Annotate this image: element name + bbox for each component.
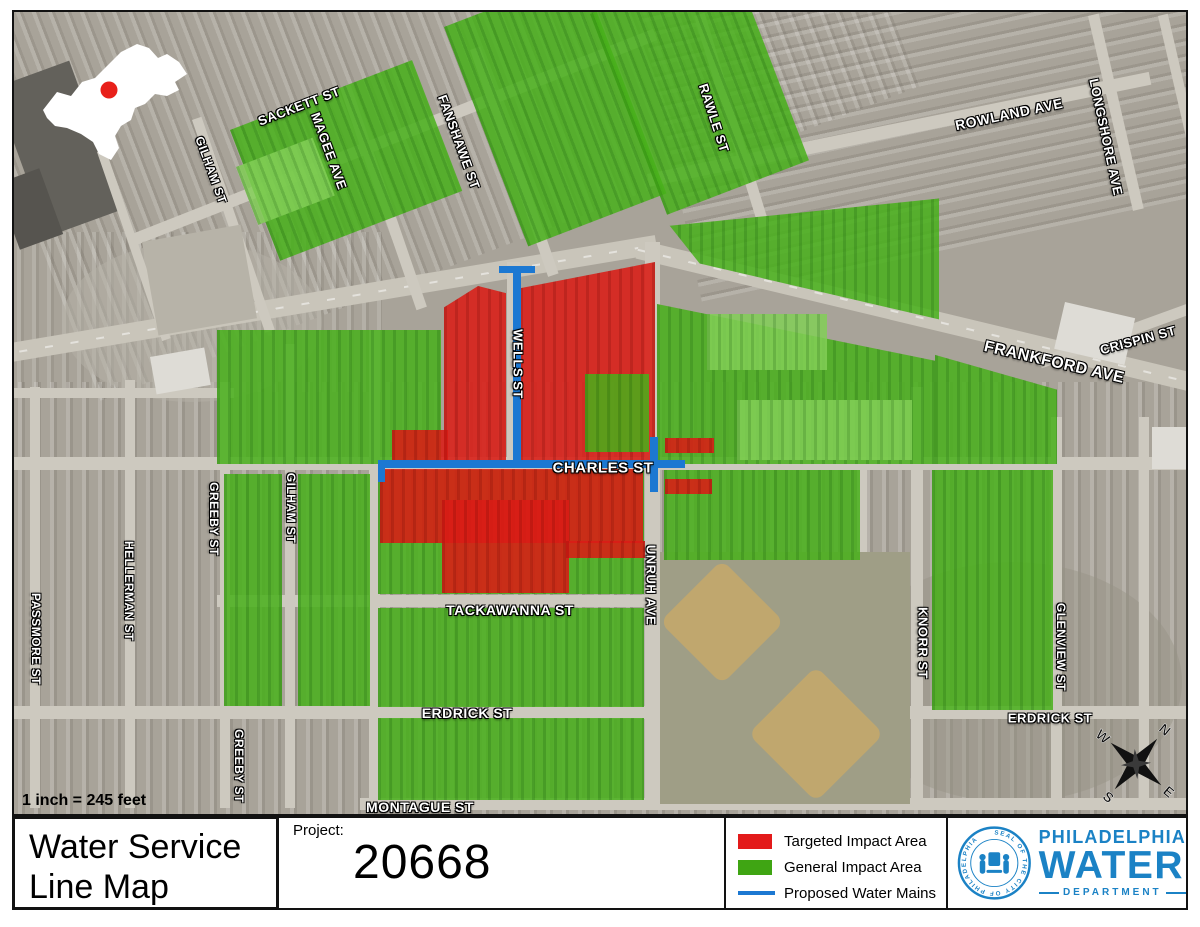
compass-s: S bbox=[1100, 788, 1117, 806]
street-label: UNRUH AVE bbox=[644, 545, 659, 625]
legend-row-targeted: Targeted Impact Area bbox=[738, 828, 946, 854]
map-title-box: Water Service Line Map bbox=[12, 816, 279, 910]
street-label: GILHAM ST bbox=[284, 473, 298, 544]
street-label: WELLS ST bbox=[511, 329, 526, 399]
legend-swatch-general bbox=[738, 860, 772, 875]
impact-area-general bbox=[224, 474, 282, 706]
impact-area-general bbox=[585, 374, 649, 452]
impact-area-general bbox=[667, 192, 939, 322]
compass-e: E bbox=[1160, 783, 1177, 801]
parking-lot bbox=[142, 225, 257, 336]
legend-swatch-mains bbox=[738, 891, 775, 895]
wordmark-dash bbox=[1039, 892, 1059, 894]
pwd-wordmark: PHILADELPHIA WATER DEPARTMENT bbox=[1039, 828, 1186, 899]
impact-area-general bbox=[378, 608, 644, 707]
map-layers: SACKETT STMAGEE AVEFANSHAWE STRAWLE STGI… bbox=[12, 10, 1188, 816]
legend-label-general: General Impact Area bbox=[784, 859, 922, 876]
street-minor bbox=[1158, 14, 1188, 201]
street-label: CHARLES ST bbox=[553, 460, 654, 477]
impact-area-general bbox=[298, 474, 370, 706]
legend-label-targeted: Targeted Impact Area bbox=[784, 833, 927, 850]
water-main-end-tick bbox=[499, 266, 535, 273]
impact-area-targeted bbox=[444, 286, 506, 464]
street-minor bbox=[12, 388, 234, 398]
legend-swatch-targeted bbox=[738, 834, 772, 849]
city-seal-icon: SEAL OF THE CITY OF PHILADELPHIA bbox=[956, 824, 1033, 902]
impact-area-general bbox=[707, 314, 827, 370]
compass-rose: N E S W bbox=[1084, 712, 1188, 816]
impact-area-targeted bbox=[665, 438, 714, 453]
water-service-line-map-page: SACKETT STMAGEE AVEFANSHAWE STRAWLE STGI… bbox=[0, 0, 1200, 927]
impact-area-targeted bbox=[665, 479, 712, 494]
philadelphia-silhouette bbox=[43, 44, 187, 160]
pwd-wordmark-philadelphia: PHILADELPHIA bbox=[1039, 828, 1186, 846]
compass-n: N bbox=[1156, 720, 1174, 739]
street-label: PASSMORE ST bbox=[29, 593, 43, 685]
street-label: HELLERMAN ST bbox=[122, 541, 136, 641]
street-label: ERDRICK ST bbox=[1008, 711, 1092, 726]
building-roof bbox=[1152, 427, 1188, 469]
pwd-wordmark-water: WATER bbox=[1039, 846, 1186, 886]
project-box: Project: 20668 bbox=[277, 816, 726, 910]
legend-label-mains: Proposed Water Mains bbox=[784, 885, 936, 902]
impact-area-targeted bbox=[392, 430, 448, 460]
map-scale-text: 1 inch = 245 feet bbox=[22, 792, 146, 810]
legend-row-general: General Impact Area bbox=[738, 854, 946, 880]
pwd-wordmark-department-text: DEPARTMENT bbox=[1059, 887, 1166, 898]
legend-box: Targeted Impact Area General Impact Area… bbox=[724, 816, 948, 910]
aerial-map: SACKETT STMAGEE AVEFANSHAWE STRAWLE STGI… bbox=[12, 10, 1188, 816]
water-main-end-tick bbox=[378, 460, 385, 482]
street-label: GLENVIEW ST bbox=[1054, 603, 1068, 691]
pwd-wordmark-department: DEPARTMENT bbox=[1039, 887, 1186, 898]
street-label: GREEBY ST bbox=[207, 482, 221, 556]
map-title-line2: Line Map bbox=[29, 867, 276, 907]
street-label: TACKAWANNA ST bbox=[446, 602, 574, 618]
wordmark-dash bbox=[1166, 892, 1186, 894]
impact-area-targeted bbox=[442, 500, 569, 593]
pwd-logo-box: SEAL OF THE CITY OF PHILADELPHIA PHILADE… bbox=[946, 816, 1188, 910]
location-marker-dot bbox=[101, 82, 118, 99]
legend-row-mains: Proposed Water Mains bbox=[738, 880, 946, 906]
impact-area-targeted bbox=[566, 541, 645, 558]
street-label: MONTAGUE ST bbox=[366, 799, 474, 815]
impact-area-general bbox=[737, 400, 912, 460]
map-title-line1: Water Service bbox=[29, 827, 276, 867]
seal-shield bbox=[988, 852, 1000, 866]
project-number: 20668 bbox=[353, 835, 724, 890]
compass-w: W bbox=[1093, 726, 1114, 747]
impact-area-general bbox=[378, 718, 644, 800]
city-inset-map bbox=[27, 32, 197, 172]
impact-area-general bbox=[932, 470, 1053, 710]
street-label: KNORR ST bbox=[916, 607, 931, 679]
street-label: ERDRICK ST bbox=[422, 705, 513, 721]
street-label: GREEBY ST bbox=[232, 729, 246, 803]
